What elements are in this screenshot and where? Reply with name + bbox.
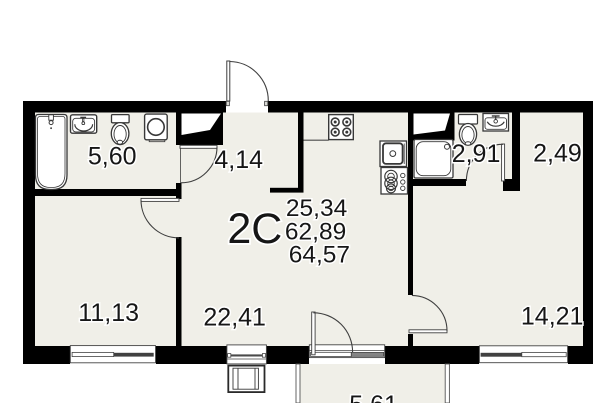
svg-text:2C: 2C <box>227 205 282 253</box>
svg-text:64,57: 64,57 <box>289 242 350 269</box>
svg-text:14,21: 14,21 <box>521 302 584 330</box>
svg-text:2,91: 2,91 <box>452 140 501 168</box>
svg-text:5,60: 5,60 <box>88 143 137 171</box>
svg-text:5,61: 5,61 <box>349 391 398 403</box>
svg-text:4,14: 4,14 <box>214 146 263 174</box>
svg-text:2,49: 2,49 <box>533 139 582 167</box>
svg-text:22,41: 22,41 <box>203 304 266 332</box>
svg-text:11,13: 11,13 <box>78 299 139 327</box>
